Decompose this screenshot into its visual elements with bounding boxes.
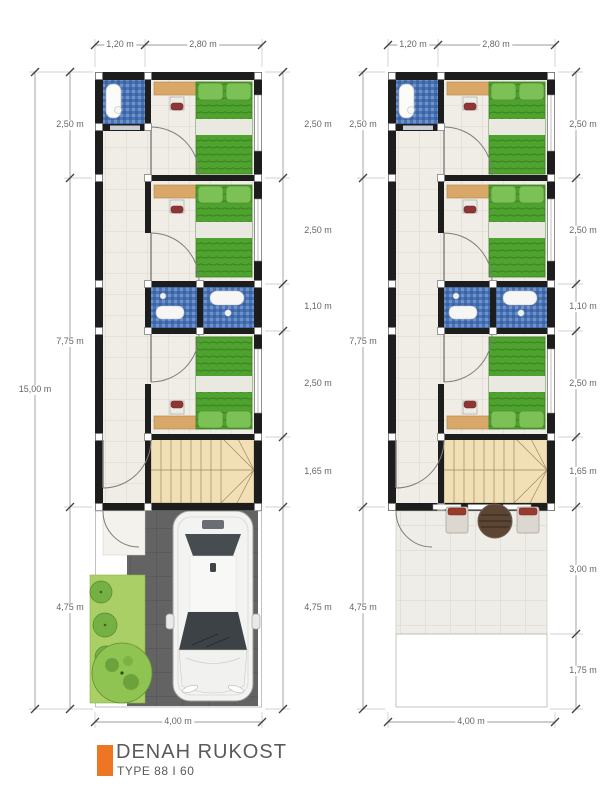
- dim-label-upper-right-0: 2,50 m: [567, 120, 599, 130]
- dim-label-upper-top-1: 2,80 m: [480, 40, 512, 50]
- dim-label-ground-right-3: 2,50 m: [302, 379, 334, 389]
- terrace-chair: [517, 507, 539, 533]
- terrace-table: [478, 504, 512, 538]
- dim-label-ground-right-1: 2,50 m: [302, 226, 334, 236]
- accent-block: [97, 745, 113, 776]
- dim-label-upper-right-3: 2,50 m: [567, 379, 599, 389]
- dim-label-upper-left-2: 4,75 m: [347, 603, 379, 613]
- tree: [92, 643, 152, 703]
- dim-label-upper-right-6: 1,75 m: [567, 666, 599, 676]
- dim-label-upper-top-0: 1,20 m: [397, 40, 429, 50]
- dim-label-ground-top-0: 1,20 m: [104, 40, 136, 50]
- dim-label-upper-left-1: 7,75 m: [347, 337, 379, 347]
- dim-label-upper-bottom: 4,00 m: [455, 717, 487, 727]
- dim-label-ground-top-1: 2,80 m: [187, 40, 219, 50]
- dim-label-ground-right-2: 1,10 m: [302, 302, 334, 312]
- dim-label-ground-right-4: 1,65 m: [302, 467, 334, 477]
- dim-label-upper-right-4: 1,65 m: [567, 467, 599, 477]
- dim-label-ground-left-2: 4,75 m: [54, 603, 86, 613]
- plan-title: DENAH RUKOST: [116, 741, 287, 764]
- car: [166, 511, 260, 701]
- dim-label-upper-right-2: 1,10 m: [567, 302, 599, 312]
- porch: [103, 511, 145, 555]
- dim-label-upper-left-0: 2,50 m: [347, 120, 379, 130]
- dim-label-upper-right-1: 2,50 m: [567, 226, 599, 236]
- terrace: [396, 504, 547, 707]
- dim-label-upper-right-5: 3,00 m: [567, 565, 599, 575]
- dim-label-ground-overall: 15,00 m: [17, 385, 54, 395]
- terrace-chair: [446, 507, 468, 533]
- dim-label-ground-right-0: 2,50 m: [302, 120, 334, 130]
- floor-plan-sheet: 1,20 m 2,80 m 15,00 m 2,50 m 7,75 m 4,75…: [0, 0, 608, 804]
- ground-floor-plan: [29, 39, 290, 728]
- plan-subtitle: TYPE 88 I 60: [117, 764, 194, 778]
- dim-label-ground-bottom: 4,00 m: [162, 717, 194, 727]
- dim-label-ground-right-5: 4,75 m: [302, 603, 334, 613]
- upper-floor-plan: [357, 39, 583, 728]
- dim-label-ground-left-0: 2,50 m: [54, 120, 86, 130]
- dim-label-ground-left-1: 7,75 m: [54, 337, 86, 347]
- carport-yard: [90, 511, 262, 707]
